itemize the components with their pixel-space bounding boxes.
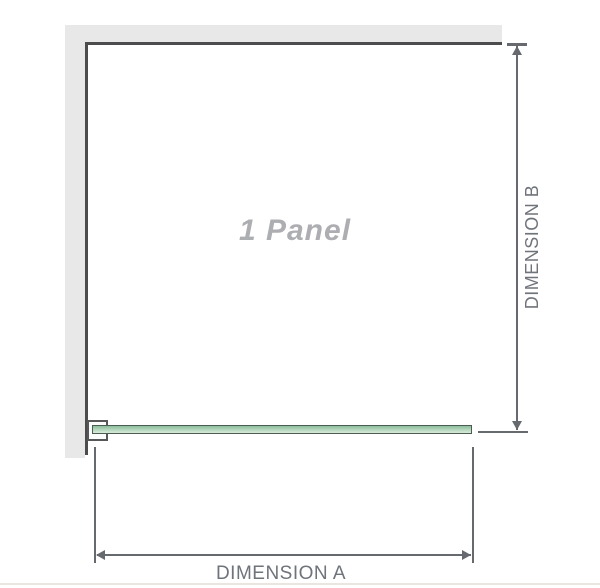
panel-top-edge <box>85 42 502 45</box>
dimension-a-extension-right <box>472 447 474 563</box>
arrow-up-icon <box>512 46 522 55</box>
dimension-b-label: DIMENSION B <box>523 167 541 327</box>
wall-top <box>65 25 502 42</box>
dimension-a-line <box>97 554 471 556</box>
dimension-b-tick-bottom <box>478 431 528 434</box>
dimension-b-line <box>516 46 518 430</box>
dimension-a-extension-left <box>94 447 96 563</box>
arrow-down-icon <box>512 421 522 430</box>
panel-left-edge <box>85 42 88 455</box>
panel-dimension-diagram: 1 Panel DIMENSION B DIMENSION A <box>0 0 600 588</box>
arrow-left-icon <box>96 550 105 560</box>
glass-panel-bar <box>92 425 472 434</box>
panel-count-label: 1 Panel <box>85 214 505 248</box>
wall-left <box>65 25 85 458</box>
footer-divider <box>0 583 600 585</box>
arrow-right-icon <box>462 550 471 560</box>
dimension-a-label: DIMENSION A <box>85 563 477 585</box>
